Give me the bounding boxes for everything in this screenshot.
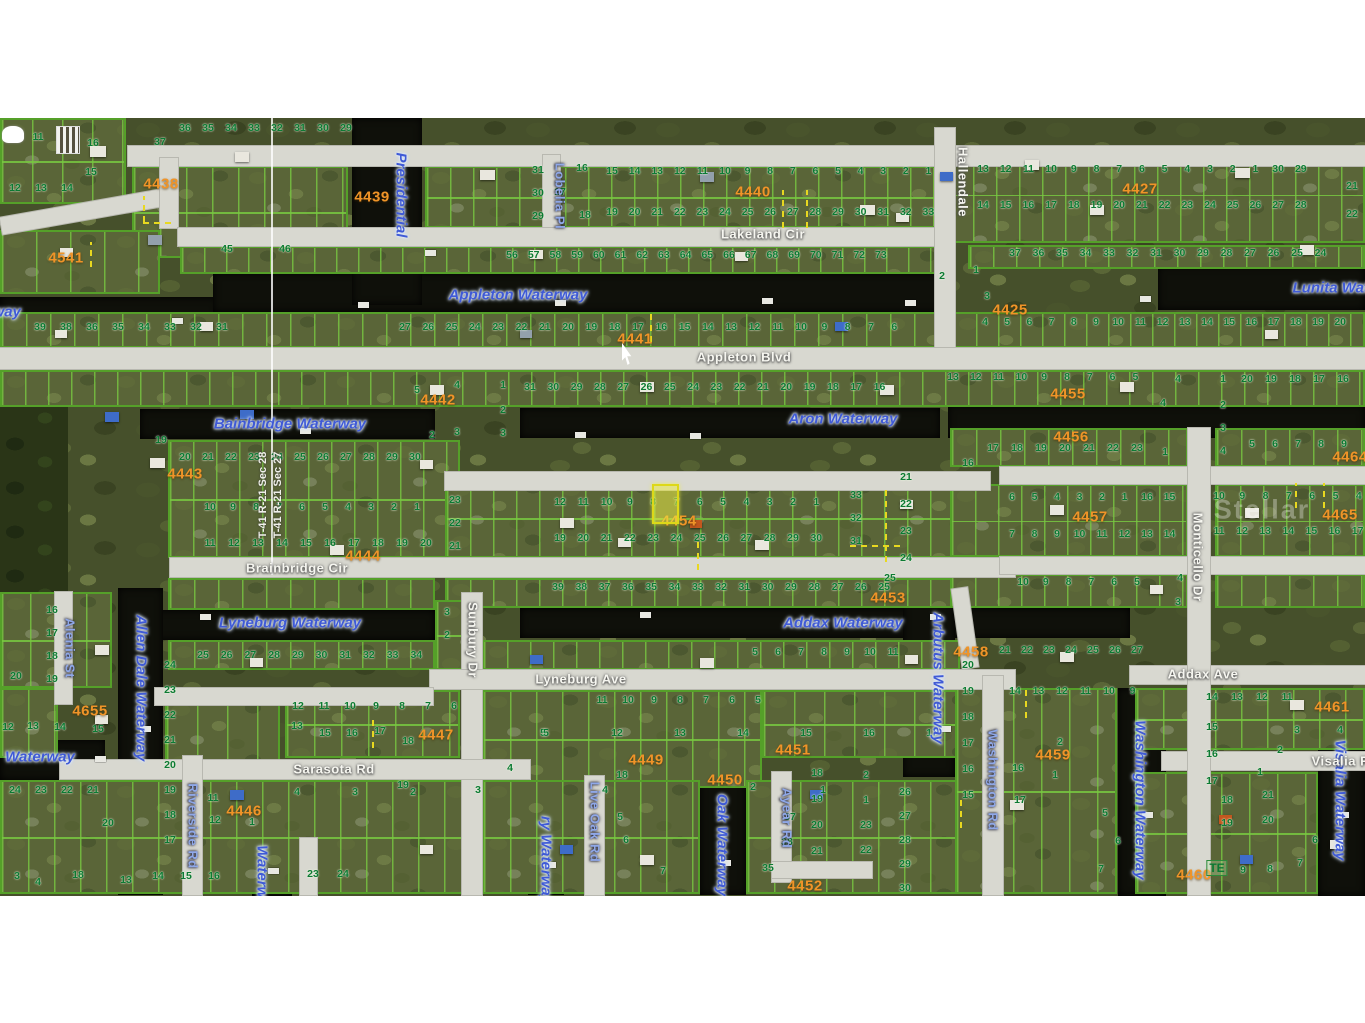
lot-number: 14 — [1009, 685, 1021, 697]
lot-number: 9 — [1093, 316, 1099, 328]
lot-number: 28 — [363, 451, 375, 463]
lot-number: 4 — [1054, 491, 1060, 503]
lot-number: 5 — [1162, 163, 1168, 175]
lot-number: 9 — [1130, 685, 1136, 697]
road-segment — [430, 670, 1015, 689]
lot-number: 4 — [1184, 163, 1190, 175]
lot-number: 1 — [1162, 446, 1168, 458]
block-number-label: 4465 — [1322, 507, 1357, 524]
lot-number: 31 — [216, 321, 228, 333]
lot-number: 21 — [651, 206, 663, 218]
lot-boundary-lines — [484, 739, 760, 741]
lot-number: 30 — [409, 451, 421, 463]
lot-number: 13 — [1141, 528, 1153, 540]
lot-number: 22 — [1346, 208, 1358, 220]
parcel-block — [955, 688, 1117, 894]
lot-number: 19 — [554, 532, 566, 544]
street-name-label: Sarasota Rd — [293, 762, 374, 777]
lot-number: 26 — [1268, 247, 1280, 259]
lot-number: 8 — [845, 321, 851, 333]
road-segment — [160, 158, 178, 228]
lot-number: 22 — [516, 321, 528, 333]
lot-number: 13 — [1179, 316, 1191, 328]
lot-number: 69 — [788, 249, 800, 261]
lot-number: 73 — [875, 249, 887, 261]
lot-number: 13 — [947, 371, 959, 383]
lot-number: 23 — [860, 819, 872, 831]
lot-number: 16 — [962, 763, 974, 775]
lot-number: 23 — [1181, 199, 1193, 211]
lot-boundary-lines — [1137, 833, 1316, 835]
lot-number: 3 — [444, 606, 450, 618]
lot-number: 17 — [1268, 316, 1280, 328]
lot-number: 7 — [1088, 576, 1094, 588]
lot-number: 25 — [742, 206, 754, 218]
stellar-watermark: Stellar — [1214, 495, 1311, 526]
lot-number: 17 — [374, 725, 386, 737]
lot-number: 19 — [155, 434, 167, 446]
block-number-label: 4451 — [775, 742, 810, 759]
lot-number: 3 — [1294, 724, 1300, 736]
lot-number: 32 — [900, 206, 912, 218]
lot-number: 17 — [850, 381, 862, 393]
lot-number: 19 — [606, 206, 618, 218]
lot-number: 3 — [14, 870, 20, 882]
lot-number: 25 — [446, 321, 458, 333]
lot-number: 3 — [767, 496, 773, 508]
lot-boundary-lines — [957, 791, 1115, 793]
waterway-name-label: Bainbridge Waterway — [214, 416, 366, 433]
block-number-label: 4464 — [1332, 449, 1365, 466]
lot-number: 1 — [1220, 373, 1226, 385]
lot-number: 19 — [586, 321, 598, 333]
lot-number: 14 — [977, 199, 989, 211]
lot-number: 14 — [1282, 525, 1294, 537]
lot-boundary-lines — [2, 372, 1363, 405]
lot-number: 12 — [1000, 163, 1012, 175]
lot-number: 11 — [318, 700, 329, 712]
lot-number: 27 — [787, 206, 799, 218]
lot-number: 30 — [810, 532, 822, 544]
street-name-label: Sunbury Dr — [466, 602, 481, 678]
road-segment — [128, 146, 1365, 166]
house-roof — [640, 855, 654, 865]
lot-number: 13 — [120, 874, 132, 886]
street-name-label: Washington Rd — [986, 729, 1001, 830]
lot-boundary-lines — [1217, 576, 1363, 606]
lot-number: 15 — [180, 870, 192, 882]
lot-number: 17 — [164, 834, 176, 846]
survey-dash-line — [143, 222, 173, 224]
lot-number: 16 — [1246, 316, 1258, 328]
selected-parcel-highlight[interactable] — [652, 484, 679, 524]
lot-number: 4 — [1177, 572, 1183, 584]
lot-number: 9 — [844, 646, 850, 658]
house-roof — [560, 845, 573, 854]
lot-number: 7 — [1297, 857, 1303, 869]
lot-number: 4 — [858, 165, 864, 177]
lot-number: 12 — [970, 371, 982, 383]
block-number-label: 4457 — [1072, 509, 1107, 526]
lot-number: 6 — [1110, 371, 1116, 383]
lot-number: 34 — [1080, 247, 1092, 259]
lot-number: 8 — [821, 646, 827, 658]
house-roof — [235, 152, 249, 162]
lot-number: 10 — [1017, 576, 1029, 588]
lot-number: 65 — [701, 249, 713, 261]
lot-number: 16 — [1012, 762, 1024, 774]
lot-boundary-lines — [182, 248, 943, 272]
lot-number: 9 — [821, 321, 827, 333]
lot-number: 30 — [855, 206, 867, 218]
lot-number: 37 — [599, 581, 611, 593]
lot-number: 13 — [35, 182, 47, 194]
lot-number: 12 — [9, 182, 21, 194]
lot-number: 11 — [772, 321, 783, 333]
lot-number: 8 — [1094, 163, 1100, 175]
lot-number: 13 — [252, 537, 264, 549]
lot-number: 9 — [230, 501, 236, 513]
street-name-label: Riverside Rd — [186, 783, 201, 868]
lot-number: 70 — [810, 249, 822, 261]
house-roof — [420, 460, 433, 469]
waterway-name-label: Presidential — [393, 152, 410, 237]
lot-number: 30 — [762, 581, 774, 593]
lot-number: 24 — [164, 659, 176, 671]
lot-number: 34 — [138, 321, 150, 333]
lot-number: 5 — [755, 694, 761, 706]
street-name-label: Alenia St — [63, 618, 78, 678]
lot-number: 18 — [1068, 199, 1080, 211]
lot-number: 22 — [225, 451, 237, 463]
lot-number: 19 — [962, 685, 974, 697]
lot-number: 37 — [1009, 247, 1021, 259]
road-segment — [178, 228, 948, 246]
house-roof — [1050, 505, 1064, 515]
waterway-name-label: Waterway — [0, 304, 21, 321]
lot-number: 9 — [745, 165, 751, 177]
lot-number: 16 — [863, 727, 875, 739]
lot-number: 6 — [1009, 491, 1015, 503]
block-number-label: 4655 — [72, 703, 107, 720]
house-roof — [530, 655, 543, 664]
lot-number: 15 — [1223, 316, 1235, 328]
lot-number: 31 — [1150, 247, 1162, 259]
lot-number: 5 — [617, 811, 623, 823]
lot-number: 20 — [962, 659, 974, 671]
lot-number: 21 — [757, 381, 769, 393]
lot-number: 18 — [1221, 794, 1233, 806]
lot-number: 20 — [1113, 199, 1125, 211]
lot-boundary-lines — [952, 521, 1186, 523]
lot-number: 1 — [820, 784, 826, 796]
lot-number: 22 — [734, 381, 746, 393]
lot-number: 13 — [1259, 525, 1271, 537]
house-roof — [420, 845, 433, 854]
lot-number: 10 — [1103, 685, 1115, 697]
house-roof — [1235, 168, 1250, 178]
parcel-block — [445, 478, 990, 558]
lot-number: 17 — [1014, 794, 1026, 806]
forest-patch — [0, 390, 68, 625]
lot-number: 22 — [624, 532, 636, 544]
lot-number: 12 — [611, 727, 623, 739]
block-number-label: 4427 — [1122, 181, 1157, 198]
lot-number: 21 — [601, 532, 613, 544]
lot-number: 12 — [749, 321, 761, 333]
lot-number: 23 — [492, 321, 504, 333]
block-number-label: 4443 — [167, 466, 202, 483]
lot-number: 26 — [899, 786, 911, 798]
lot-number: 28 — [1221, 247, 1233, 259]
lot-number: 19 — [1035, 442, 1047, 454]
lot-number: 13 — [977, 163, 989, 175]
lot-number: 2 — [410, 786, 416, 798]
lot-number: 11 — [1213, 525, 1224, 537]
lot-number: 6 — [451, 700, 457, 712]
dock — [690, 433, 701, 439]
lot-number: 38 — [60, 321, 72, 333]
lot-number: 18 — [1289, 373, 1301, 385]
waterway-name-label: Addax Waterway — [783, 615, 903, 632]
lot-number: 11 — [204, 537, 215, 549]
lot-number: 11 — [1080, 685, 1091, 697]
lot-number: 8 — [1071, 316, 1077, 328]
lot-number: 17 — [1045, 199, 1057, 211]
lot-number: 36 — [622, 581, 634, 593]
lot-number: 24 — [9, 784, 21, 796]
pan-hand-icon — [2, 126, 24, 143]
road-segment — [1000, 467, 1365, 484]
lot-number: 12 — [292, 700, 304, 712]
lot-number: 36 — [86, 321, 98, 333]
lot-number: 9 — [651, 694, 657, 706]
lot-number: 8 — [399, 700, 405, 712]
lot-number: 67 — [745, 249, 757, 261]
lot-number: 1 — [414, 501, 420, 513]
lot-number: 3 — [352, 786, 358, 798]
lot-number: 10 — [795, 321, 807, 333]
lot-number: 12 — [1236, 525, 1248, 537]
lot-number: 6 — [1115, 835, 1121, 847]
lot-number: 60 — [593, 249, 605, 261]
lot-number: 3 — [454, 426, 460, 438]
lot-number: 4 — [35, 876, 41, 888]
lot-number: 21 — [539, 321, 551, 333]
lot-number: 10 — [601, 496, 613, 508]
lot-number: 11 — [1023, 163, 1034, 175]
house-roof — [148, 235, 162, 245]
lot-boundary-lines — [427, 197, 941, 199]
lot-number: 16 — [346, 727, 358, 739]
lot-number: 1 — [1252, 163, 1258, 175]
lot-number: 15 — [962, 789, 974, 801]
lot-number: 12 — [2, 721, 14, 733]
lot-number: 6 — [729, 694, 735, 706]
road-segment — [1188, 428, 1210, 895]
lot-number: 64 — [680, 249, 692, 261]
bridge-symbol — [56, 126, 80, 154]
lot-number: 26 — [1250, 199, 1262, 211]
lot-number: 3 — [368, 501, 374, 513]
lot-number: 11 — [207, 792, 218, 804]
lot-number: 32 — [715, 581, 727, 593]
block-number-label: 4439 — [354, 189, 389, 206]
lot-number: 22 — [61, 784, 73, 796]
house-roof — [150, 458, 165, 468]
lot-number: 7 — [425, 700, 431, 712]
lot-number: 29 — [1197, 247, 1209, 259]
house-roof — [230, 790, 244, 800]
lot-number: 24 — [900, 552, 912, 564]
lot-number: 20 — [420, 537, 432, 549]
lot-number: 31 — [850, 535, 862, 547]
lot-number: 27 — [1244, 247, 1256, 259]
lot-number: 19 — [46, 673, 58, 685]
street-name-label: Ayear Rd — [780, 788, 795, 849]
lot-number: 20 — [1334, 316, 1346, 328]
lot-number: 13 — [651, 165, 663, 177]
lot-boundary-lines — [1137, 719, 1363, 721]
lot-number: 20 — [811, 819, 823, 831]
lot-number: 5 — [1333, 490, 1339, 502]
lot-number: 4 — [294, 786, 300, 798]
lot-number: 33 — [923, 206, 935, 218]
lot-number: 18 — [579, 209, 591, 221]
lot-number: 16 — [576, 162, 588, 174]
lot-number: 15 — [1206, 721, 1218, 733]
lot-number: 9 — [1041, 371, 1047, 383]
lot-number: 11 — [578, 496, 589, 508]
lot-number: 2 — [939, 270, 945, 282]
house-roof — [95, 645, 109, 655]
lot-number: 29 — [292, 649, 304, 661]
lot-number: 27 — [899, 810, 911, 822]
lot-number: 4 — [1337, 724, 1343, 736]
street-name-label: Lyneburg Ave — [535, 672, 626, 687]
lot-number: 14 — [276, 537, 288, 549]
lot-number: 4 — [345, 501, 351, 513]
lot-number: 26 — [855, 581, 867, 593]
lot-number: 19 — [804, 381, 816, 393]
lot-number: 18 — [962, 711, 974, 723]
lot-number: 13 — [291, 720, 303, 732]
lot-number: 4 — [982, 316, 988, 328]
section-township-label: T-41 R-21 Sec 27 — [272, 452, 284, 539]
lot-number: 16 — [87, 137, 99, 149]
lot-number: 27 — [1131, 644, 1143, 656]
lot-number: 28 — [594, 381, 606, 393]
lot-number: 13 — [1231, 691, 1243, 703]
lot-number: 10 — [204, 501, 216, 513]
block-number-label: 4541 — [48, 250, 83, 267]
lot-number: 16 — [962, 457, 974, 469]
lot-number: 18 — [72, 869, 84, 881]
lot-number: 6 — [1111, 576, 1117, 588]
lot-number: 30 — [317, 122, 329, 134]
block-number-label: 4452 — [787, 878, 822, 895]
lot-number: 16 — [1206, 748, 1218, 760]
lot-number: 3 — [1077, 491, 1083, 503]
lot-number: 11 — [1281, 691, 1292, 703]
lot-number: 62 — [636, 249, 648, 261]
lot-number: 28 — [1295, 199, 1307, 211]
lot-number: 25 — [197, 649, 209, 661]
lot-number: 11 — [887, 646, 898, 658]
lot-number: 21 — [449, 540, 461, 552]
lot-number: 7 — [703, 694, 709, 706]
lot-number: 6 — [623, 834, 629, 846]
lot-number: 27 — [832, 581, 844, 593]
lot-number: 34 — [410, 649, 422, 661]
road-segment — [935, 128, 955, 356]
lot-number: 16 — [1023, 199, 1035, 211]
lot-number: 5 — [1102, 807, 1108, 819]
lot-number: 3 — [475, 784, 481, 796]
block-number-label: 4450 — [707, 772, 742, 789]
parcel-block — [168, 578, 435, 610]
lot-number: 3 — [984, 290, 990, 302]
lot-number: 28 — [810, 206, 822, 218]
block-number-label: 4456 — [1053, 429, 1088, 446]
block-number-label: 4438 — [143, 176, 178, 193]
dock — [762, 298, 773, 304]
lot-number: 13 — [674, 727, 686, 739]
lot-number: 2 — [1230, 163, 1236, 175]
lot-number: 8 — [677, 694, 683, 706]
lot-number: 17 — [1352, 525, 1364, 537]
house-roof — [480, 170, 495, 180]
lot-number: 5 — [1134, 576, 1140, 588]
lot-number: 26 — [641, 381, 653, 393]
lot-number: 26 — [764, 206, 776, 218]
block-number-label: 4453 — [870, 590, 905, 607]
lot-number: 17 — [962, 737, 974, 749]
lot-number: 12 — [1056, 685, 1068, 697]
lot-number: 2 — [863, 769, 869, 781]
lot-number: 16 — [874, 381, 886, 393]
lot-number: 35 — [202, 122, 214, 134]
lot-number: 35 — [1056, 247, 1068, 259]
block-number-label: 4442 — [420, 392, 455, 409]
lot-number: 5 — [414, 384, 420, 396]
lot-number: 5 — [1032, 491, 1038, 503]
map-viewport[interactable]: 1011161512131436353433323130293716171831… — [0, 118, 1365, 896]
lot-number: 13 — [27, 720, 39, 732]
lot-number: 32 — [190, 321, 202, 333]
lot-number: 12 — [1256, 691, 1268, 703]
waterway-name-label: Lyneburg Waterway — [219, 615, 361, 632]
lot-number: 22 — [860, 844, 872, 856]
lot-number: 26 — [422, 321, 434, 333]
lot-number: 5 — [752, 646, 758, 658]
lot-number: 23 — [697, 206, 709, 218]
lot-number: 14 — [737, 727, 749, 739]
lot-number: 72 — [853, 249, 865, 261]
lot-number: 24 — [1315, 247, 1327, 259]
lot-number: 12 — [209, 814, 221, 826]
lot-number: 5 — [720, 496, 726, 508]
lot-number: 2 — [391, 501, 397, 513]
lot-number: 15 — [1164, 491, 1176, 503]
lot-number: 4 — [507, 762, 513, 774]
house-roof — [905, 655, 918, 664]
lot-number: 16 — [46, 604, 58, 616]
lot-number: 23 — [1131, 442, 1143, 454]
parcel-block — [1135, 688, 1365, 750]
survey-dash-line — [885, 487, 887, 562]
lot-number: 35 — [762, 862, 774, 874]
